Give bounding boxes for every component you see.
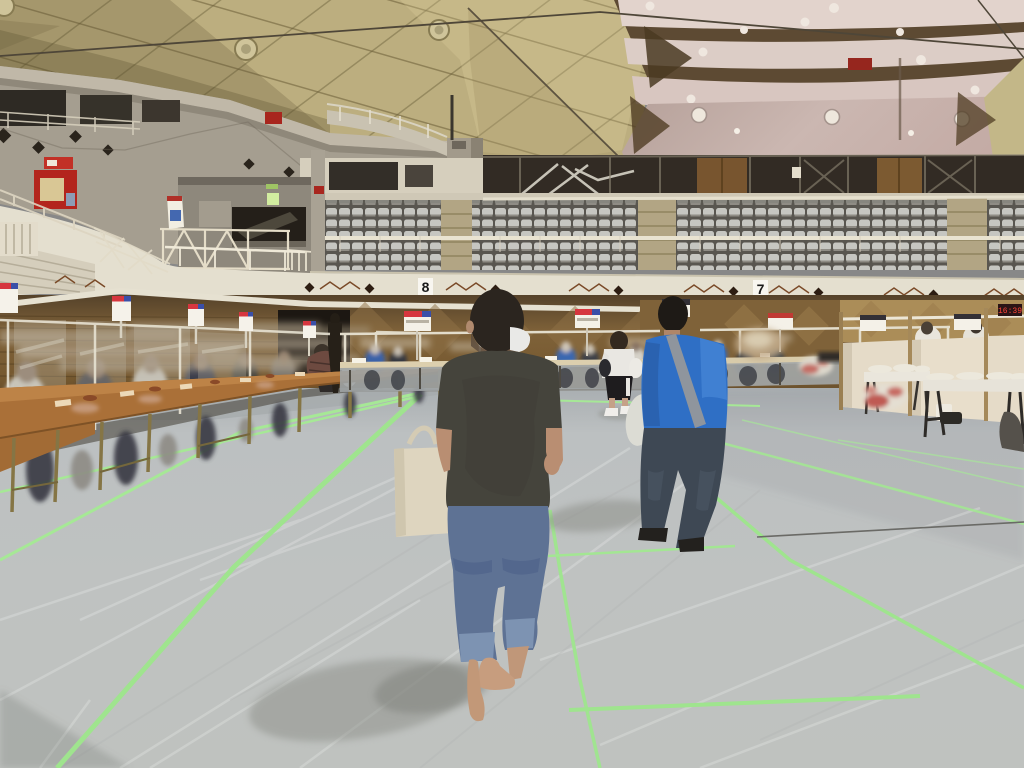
svg-text:7: 7	[757, 281, 765, 297]
svg-text:8: 8	[422, 279, 430, 295]
svg-text:16:39: 16:39	[998, 307, 1022, 316]
